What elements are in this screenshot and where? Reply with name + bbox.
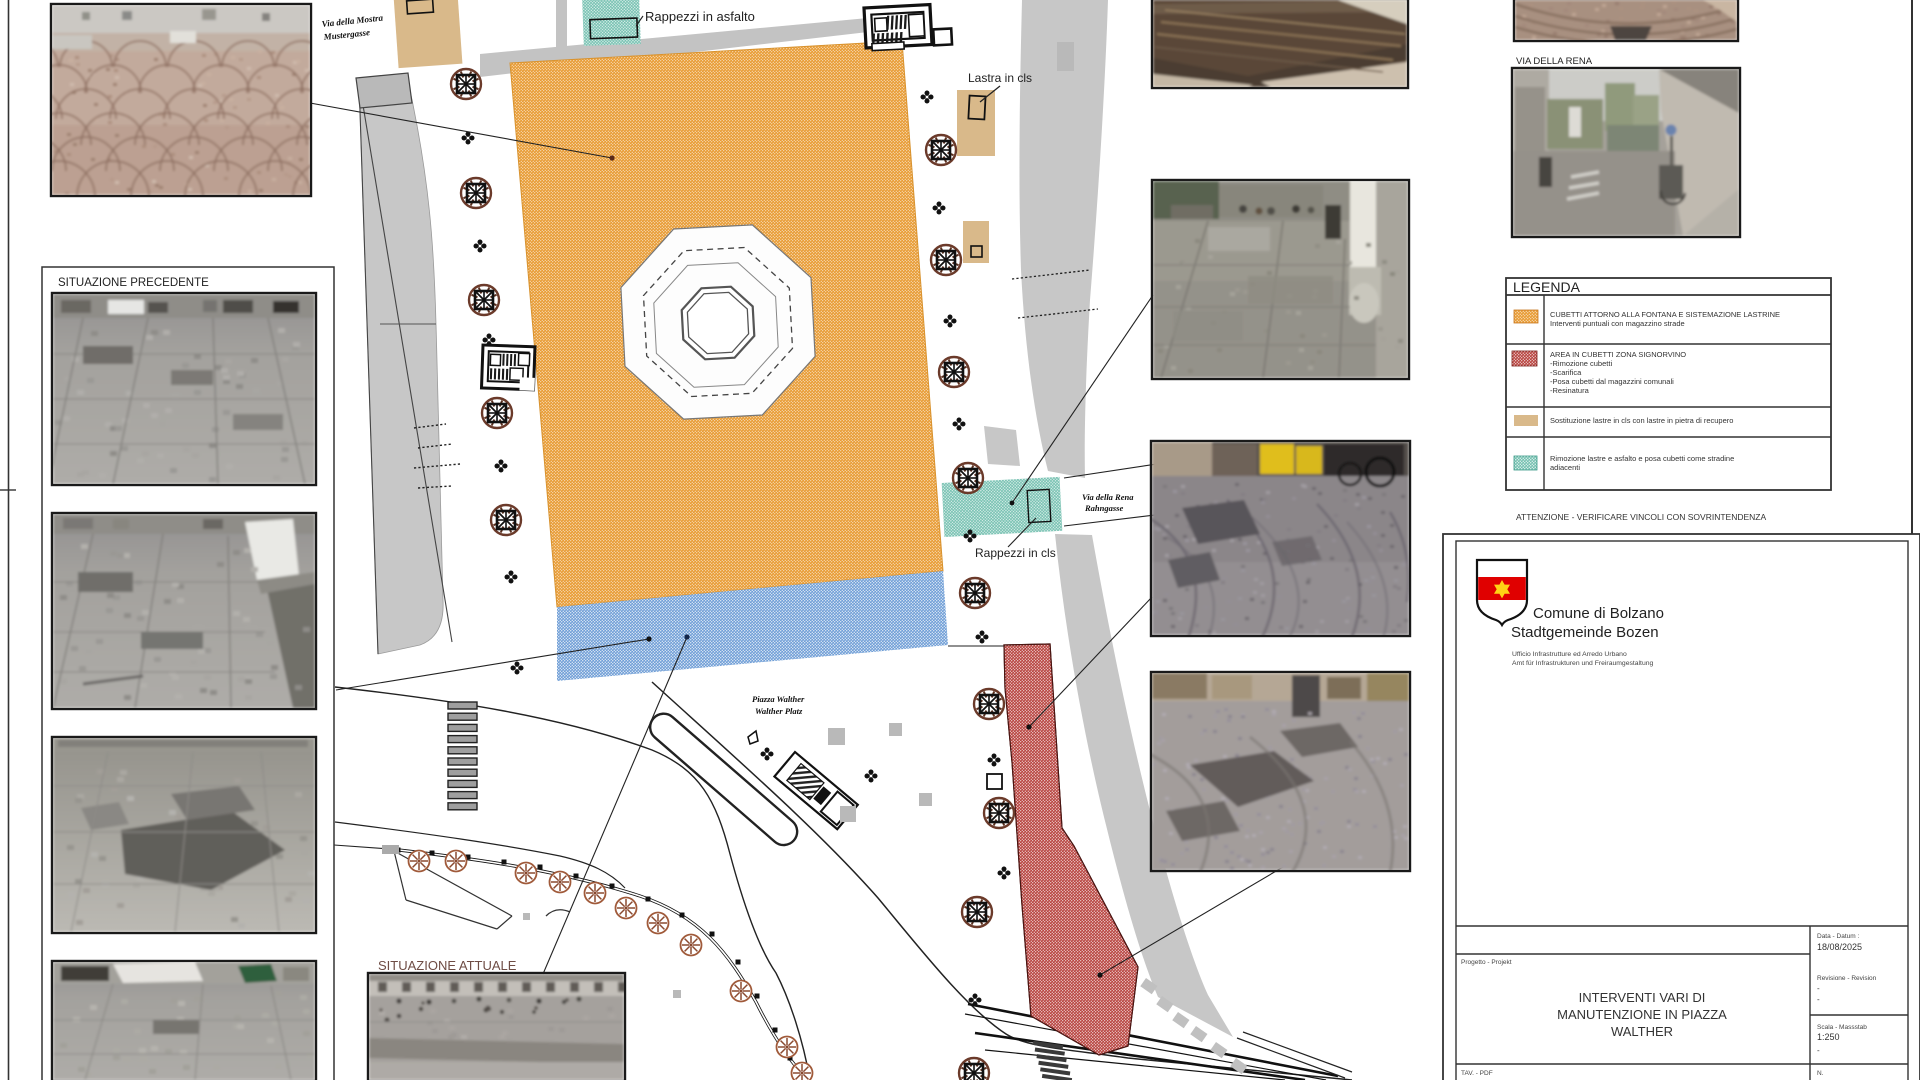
svg-text:AREA IN CUBETTI ZONA SIGNORVIN: AREA IN CUBETTI ZONA SIGNORVINO bbox=[1550, 350, 1686, 359]
svg-text:Rimozione lastre e asfalto e p: Rimozione lastre e asfalto e posa cubett… bbox=[1550, 454, 1734, 463]
svg-text:-: - bbox=[1817, 984, 1820, 993]
svg-text:Amt für Infrastrukturen und Fr: Amt für Infrastrukturen und Freiraumgest… bbox=[1512, 660, 1654, 667]
svg-text:Progetto - Projekt: Progetto - Projekt bbox=[1461, 959, 1512, 966]
svg-text:CUBETTI ATTORNO ALLA FONTANA E: CUBETTI ATTORNO ALLA FONTANA E SISTEMAZI… bbox=[1550, 310, 1780, 319]
svg-text:Ufficio Infrastrutture ed Arre: Ufficio Infrastrutture ed Arredo Urbano bbox=[1512, 651, 1627, 658]
svg-text:Interventi puntuali con magazz: Interventi puntuali con magazzino strade bbox=[1550, 319, 1685, 328]
svg-text:adiacenti: adiacenti bbox=[1550, 463, 1580, 472]
svg-text:Rappezzi in cls: Rappezzi in cls bbox=[975, 546, 1056, 560]
svg-text:VIA DELLA RENA: VIA DELLA RENA bbox=[1516, 56, 1593, 67]
svg-text:MANUTENZIONE IN PIAZZA: MANUTENZIONE IN PIAZZA bbox=[1557, 1007, 1727, 1022]
svg-text:18/08/2025: 18/08/2025 bbox=[1817, 942, 1862, 952]
svg-text:Via della Rena: Via della Rena bbox=[1082, 492, 1134, 502]
svg-text:-Rimozione cubetti: -Rimozione cubetti bbox=[1550, 359, 1612, 368]
svg-text:-Resinatura: -Resinatura bbox=[1550, 386, 1590, 395]
svg-text:Lastra in cls: Lastra in cls bbox=[968, 71, 1032, 85]
svg-text:Scala - Massstab: Scala - Massstab bbox=[1817, 1024, 1867, 1031]
svg-text:-Scarifica: -Scarifica bbox=[1550, 368, 1582, 377]
svg-text:-: - bbox=[1817, 995, 1820, 1004]
svg-text:Sostituzione lastre in cls con: Sostituzione lastre in cls con lastre in… bbox=[1550, 416, 1733, 425]
svg-text:N.: N. bbox=[1817, 1070, 1824, 1077]
svg-text:Walther Platz: Walther Platz bbox=[755, 706, 803, 716]
svg-text:Piazza Walther: Piazza Walther bbox=[752, 694, 805, 704]
svg-text:Revisione - Revision: Revisione - Revision bbox=[1817, 975, 1877, 982]
svg-text:SITUAZIONE ATTUALE: SITUAZIONE ATTUALE bbox=[378, 958, 517, 973]
svg-text:Comune di Bolzano: Comune di Bolzano bbox=[1533, 605, 1664, 622]
svg-text:Stadtgemeinde Bozen: Stadtgemeinde Bozen bbox=[1511, 624, 1659, 641]
svg-text:Rahngasse: Rahngasse bbox=[1084, 503, 1123, 513]
svg-text:1:250: 1:250 bbox=[1817, 1032, 1840, 1042]
svg-text:SITUAZIONE PRECEDENTE: SITUAZIONE PRECEDENTE bbox=[58, 277, 209, 289]
svg-text:TAV. - PDF: TAV. - PDF bbox=[1461, 1070, 1493, 1077]
svg-text:WALTHER: WALTHER bbox=[1611, 1024, 1673, 1039]
svg-text:INTERVENTI VARI DI: INTERVENTI VARI DI bbox=[1579, 990, 1706, 1005]
svg-text:-Posa cubetti dal magazzini co: -Posa cubetti dal magazzini comunali bbox=[1550, 377, 1674, 386]
svg-text:-: - bbox=[1817, 1046, 1820, 1055]
svg-text:LEGENDA: LEGENDA bbox=[1513, 279, 1581, 295]
svg-text:Rappezzi in asfalto: Rappezzi in asfalto bbox=[645, 9, 755, 24]
svg-text:Data - Datum :: Data - Datum : bbox=[1817, 933, 1859, 940]
svg-text:ATTENZIONE - VERIFICARE VINCOL: ATTENZIONE - VERIFICARE VINCOLI CON SOVR… bbox=[1516, 512, 1766, 522]
